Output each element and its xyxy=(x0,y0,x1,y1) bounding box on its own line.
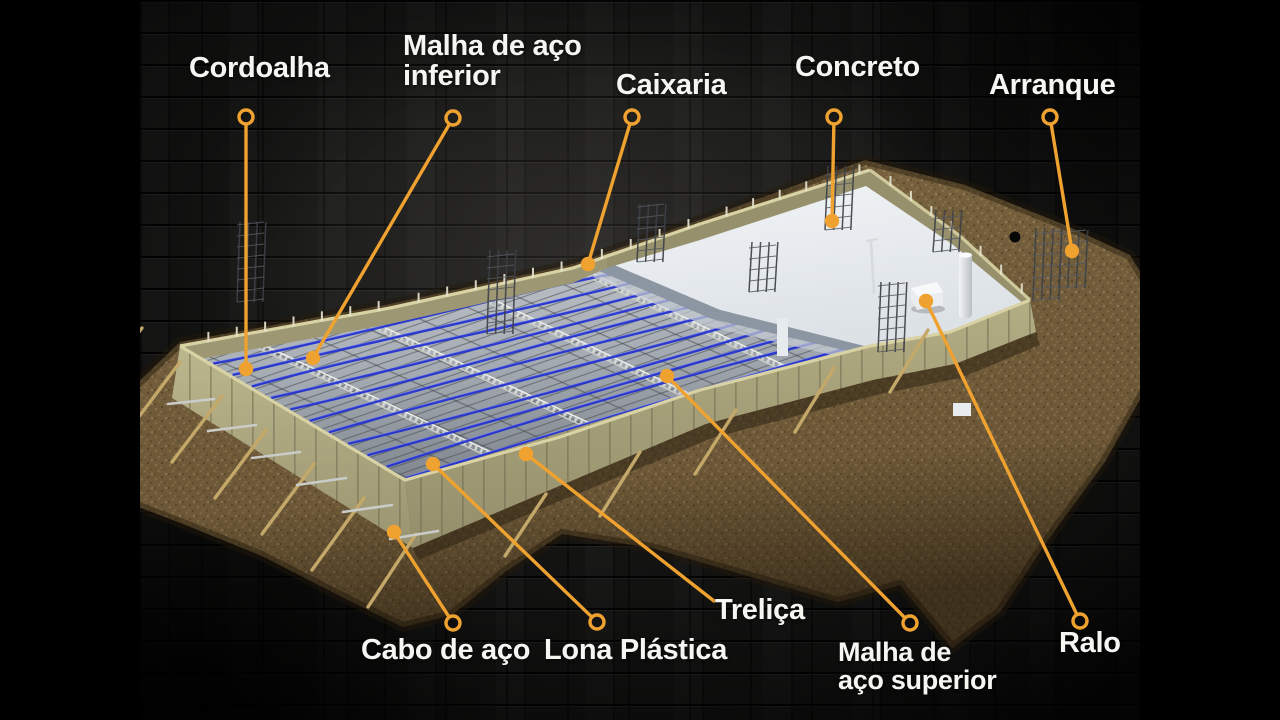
letterbox-left xyxy=(0,0,140,720)
leader-dot xyxy=(660,369,674,383)
leader-dot xyxy=(387,525,401,539)
leader-dot xyxy=(426,457,440,471)
leader-dot xyxy=(519,447,533,461)
leader-dot xyxy=(581,257,595,271)
leader-dot xyxy=(825,214,839,228)
leader-dot xyxy=(919,294,933,308)
leader-ring xyxy=(1043,110,1057,124)
leader-ring xyxy=(239,110,253,124)
leader-line xyxy=(832,124,834,221)
soil-hole xyxy=(1010,232,1021,243)
pipe-cylinder xyxy=(959,254,972,318)
leader-ring xyxy=(827,110,841,124)
leader-ring xyxy=(903,616,917,630)
leader-dot xyxy=(239,362,253,376)
video-frame: CordoalhaMalha de aço inferiorCaixariaCo… xyxy=(0,0,1280,720)
leader-dot xyxy=(1065,244,1079,258)
leader-ring xyxy=(446,111,460,125)
leader-ring xyxy=(1073,614,1087,628)
construction-3d-diagram xyxy=(0,0,1280,720)
small-white-box xyxy=(953,403,971,416)
pipe-cylinder-top xyxy=(959,252,972,257)
leader-ring xyxy=(590,615,604,629)
white-post xyxy=(777,318,788,356)
leader-ring xyxy=(625,110,639,124)
letterbox-right xyxy=(1140,0,1280,720)
leader-dot xyxy=(306,351,320,365)
rebar-cage xyxy=(237,222,266,302)
